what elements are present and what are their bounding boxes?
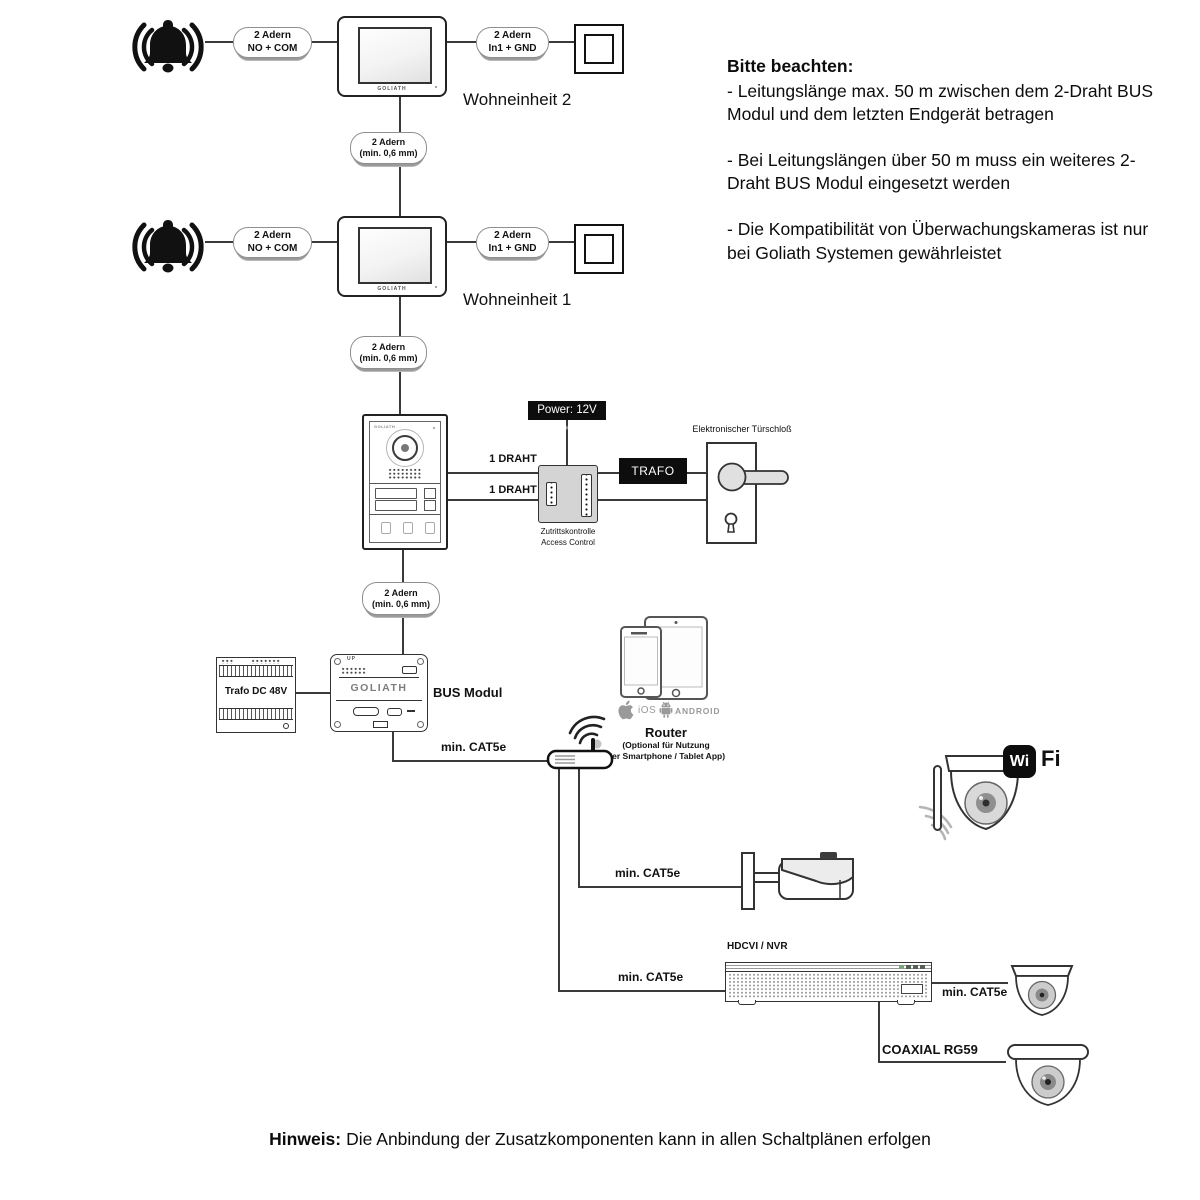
connector-port bbox=[353, 707, 379, 716]
led bbox=[913, 965, 918, 969]
wire bbox=[596, 499, 707, 501]
touch-key-icon bbox=[403, 522, 413, 534]
wire bbox=[443, 41, 476, 43]
access-control-caption: Zutrittskontrolle Access Control bbox=[528, 527, 608, 549]
wall-button-icon bbox=[574, 24, 624, 74]
trafo-box: TRAFO bbox=[619, 458, 687, 484]
android-label: ANDROID bbox=[675, 706, 720, 716]
access-control-icon bbox=[538, 465, 598, 523]
wire bbox=[596, 472, 619, 474]
wire-cat5e bbox=[578, 767, 580, 886]
camera-lens-icon bbox=[386, 429, 424, 467]
cat5e-label: min. CAT5e bbox=[618, 970, 683, 984]
pill-line2: NO + COM bbox=[234, 43, 311, 55]
router-title: Router bbox=[621, 725, 711, 740]
cat5e-label: min. CAT5e bbox=[615, 866, 680, 880]
door-station-panel: GOLIATH bbox=[369, 421, 441, 543]
led bbox=[906, 965, 911, 969]
wire bbox=[399, 293, 401, 336]
pill-line2: (min. 0,6 mm) bbox=[363, 599, 439, 610]
divider bbox=[370, 483, 440, 484]
wire bbox=[205, 41, 233, 43]
din-transformer-icon: Trafo DC 48V bbox=[216, 657, 296, 733]
bus-brand: GOLIATH bbox=[331, 682, 427, 694]
wifi-logo-icon: Wi bbox=[1003, 745, 1036, 778]
terminal-strip bbox=[546, 482, 557, 506]
pill-line2: (min. 0,6 mm) bbox=[351, 353, 426, 364]
screw bbox=[334, 721, 341, 728]
monitor-screen bbox=[358, 227, 432, 284]
wire bbox=[294, 692, 330, 694]
wire bbox=[399, 369, 401, 414]
screw bbox=[283, 723, 289, 729]
footer-label: Hinweis: bbox=[269, 1129, 341, 1149]
divider bbox=[370, 514, 440, 515]
wall-button-inner bbox=[584, 234, 614, 264]
connector-slot bbox=[373, 721, 388, 728]
connector-pill-min06: 2 Adern (min. 0,6 mm) bbox=[362, 582, 440, 615]
touch-key-icon bbox=[425, 522, 435, 534]
pill-line1: 2 Adern bbox=[234, 230, 311, 242]
bullet-camera-icon bbox=[736, 848, 861, 914]
monitor-icon: GOLIATH bbox=[337, 16, 447, 97]
nvr-foot bbox=[897, 1000, 915, 1005]
nvr-label: HDCVI / NVR bbox=[727, 941, 788, 952]
bell-icon bbox=[131, 212, 205, 282]
speaker-grille bbox=[388, 468, 422, 480]
door-lock-label: Elektronischer Türschloß bbox=[672, 424, 812, 434]
nvr-mesh bbox=[728, 973, 929, 998]
wire bbox=[399, 164, 401, 216]
ios-label: iOS bbox=[638, 705, 656, 716]
caption-line2: Access Control bbox=[528, 538, 608, 549]
connector-pill-no-com: 2 Adern NO + COM bbox=[233, 227, 312, 258]
wire bbox=[402, 546, 404, 582]
call-button bbox=[424, 488, 436, 499]
monitor-screen bbox=[358, 27, 432, 84]
terminal-strip bbox=[581, 474, 592, 517]
door-lock-icon bbox=[703, 438, 798, 548]
divider bbox=[336, 700, 422, 701]
pill-line2: In1 + GND bbox=[477, 43, 548, 55]
wire bbox=[549, 41, 574, 43]
door-station-brand: GOLIATH bbox=[374, 424, 395, 429]
wire bbox=[312, 241, 337, 243]
monitor-brand: GOLIATH bbox=[339, 86, 445, 92]
wire-cat5e bbox=[392, 760, 553, 762]
nvr-leds bbox=[899, 965, 925, 969]
wire bbox=[399, 93, 401, 132]
wall-button-inner bbox=[584, 34, 614, 64]
connector-slot bbox=[407, 710, 415, 712]
bus-top-row bbox=[339, 664, 419, 678]
pill-line1: 2 Adern bbox=[363, 588, 439, 599]
unit-label-1: Wohneinheit 1 bbox=[463, 290, 571, 310]
footer-note: Hinweis:Die Anbindung der Zusatzkomponen… bbox=[0, 1129, 1200, 1150]
wire bbox=[205, 241, 233, 243]
bus-module-label: BUS Modul bbox=[433, 685, 502, 700]
cat5e-label: min. CAT5e bbox=[942, 985, 1007, 999]
power-label-box: Power: 12V DC bbox=[528, 401, 606, 420]
wire-cat5e bbox=[930, 982, 1008, 984]
caption-line1: Zutrittskontrolle bbox=[528, 527, 608, 538]
wire-label-1draht: 1 DRAHT bbox=[483, 453, 543, 465]
monitor-led bbox=[435, 86, 437, 88]
camera-pupil bbox=[401, 444, 409, 452]
wire-cat5e bbox=[558, 767, 560, 990]
pill-line1: 2 Adern bbox=[477, 230, 548, 242]
pill-line1: 2 Adern bbox=[234, 30, 311, 42]
pill-line1: 2 Adern bbox=[351, 342, 426, 353]
dome-camera-icon bbox=[1004, 958, 1080, 1020]
wire bbox=[443, 241, 476, 243]
heatsink-fins bbox=[219, 708, 293, 720]
name-plate bbox=[375, 500, 417, 511]
led bbox=[899, 965, 904, 969]
camera-ring bbox=[392, 435, 418, 461]
pill-line2: (min. 0,6 mm) bbox=[351, 148, 426, 159]
door-station-icon: GOLIATH bbox=[362, 414, 448, 550]
wire bbox=[549, 241, 574, 243]
router-icon bbox=[546, 710, 624, 772]
wire bbox=[312, 41, 337, 43]
transformer-label-area: Trafo DC 48V bbox=[219, 675, 293, 708]
notes-block: Bitte beachten: - Leitungslänge max. 50 … bbox=[727, 55, 1159, 288]
terminal-dots bbox=[251, 659, 281, 664]
connector-pill-min06: 2 Adern (min. 0,6 mm) bbox=[350, 336, 427, 369]
connector-pill-in1-gnd: 2 Adern In1 + GND bbox=[476, 27, 549, 58]
dome-camera-icon bbox=[1002, 1040, 1094, 1112]
nvr-foot bbox=[738, 1000, 756, 1005]
name-plate bbox=[375, 488, 417, 499]
led bbox=[920, 965, 925, 969]
screw bbox=[417, 721, 424, 728]
connector-port bbox=[402, 666, 417, 674]
monitor-led bbox=[435, 286, 437, 288]
wire-cat5e bbox=[558, 990, 725, 992]
unit-label-2: Wohneinheit 2 bbox=[463, 90, 571, 110]
wire-coaxial bbox=[878, 1000, 880, 1061]
door-station-led bbox=[433, 427, 435, 429]
pill-line2: In1 + GND bbox=[477, 243, 548, 255]
note-item: - Die Kompatibilität von Überwachungskam… bbox=[727, 218, 1159, 264]
pill-line1: 2 Adern bbox=[351, 137, 426, 148]
call-button bbox=[424, 500, 436, 511]
wire-label-1draht: 1 DRAHT bbox=[483, 484, 543, 496]
terminal-dots bbox=[341, 667, 367, 674]
connector-pill-no-com: 2 Adern NO + COM bbox=[233, 27, 312, 58]
wiring-diagram: 2 Adern NO + COM GOLIATH 2 Adern In1 + G… bbox=[0, 0, 1200, 1200]
wire-coaxial bbox=[878, 1061, 1006, 1063]
wire-1-draht bbox=[444, 499, 538, 501]
wire bbox=[402, 615, 404, 654]
cat5e-label: min. CAT5e bbox=[441, 740, 506, 754]
monitor-brand: GOLIATH bbox=[339, 286, 445, 292]
coaxial-label: COAXIAL RG59 bbox=[882, 1042, 978, 1057]
pill-line1: 2 Adern bbox=[477, 30, 548, 42]
touch-key-icon bbox=[381, 522, 391, 534]
connector-pill-min06: 2 Adern (min. 0,6 mm) bbox=[350, 132, 427, 164]
wire-cat5e bbox=[578, 886, 741, 888]
connector-port bbox=[387, 708, 402, 716]
footer-text: Die Anbindung der Zusatzkomponenten kann… bbox=[346, 1129, 931, 1149]
note-item: - Leitungslänge max. 50 m zwischen dem 2… bbox=[727, 80, 1159, 126]
android-icon bbox=[659, 701, 673, 719]
transformer-label: Trafo DC 48V bbox=[225, 686, 287, 697]
wire-1-draht bbox=[444, 472, 538, 474]
wire bbox=[392, 730, 394, 760]
nvr-button bbox=[901, 984, 923, 994]
pill-line2: NO + COM bbox=[234, 243, 311, 255]
monitor-icon: GOLIATH bbox=[337, 216, 447, 297]
up-label: UP bbox=[347, 656, 356, 662]
note-item: - Bei Leitungslängen über 50 m muss ein … bbox=[727, 149, 1159, 195]
bus-module-icon: UP GOLIATH bbox=[330, 654, 428, 732]
notes-title: Bitte beachten: bbox=[727, 55, 1159, 78]
tablet-icon bbox=[613, 613, 713, 703]
wall-button-icon bbox=[574, 224, 624, 274]
bell-icon bbox=[131, 12, 205, 82]
nvr-icon bbox=[725, 962, 932, 1002]
wifi-fi-label: Fi bbox=[1041, 746, 1061, 772]
connector-pill-in1-gnd: 2 Adern In1 + GND bbox=[476, 227, 549, 258]
terminal-dots bbox=[221, 659, 234, 664]
